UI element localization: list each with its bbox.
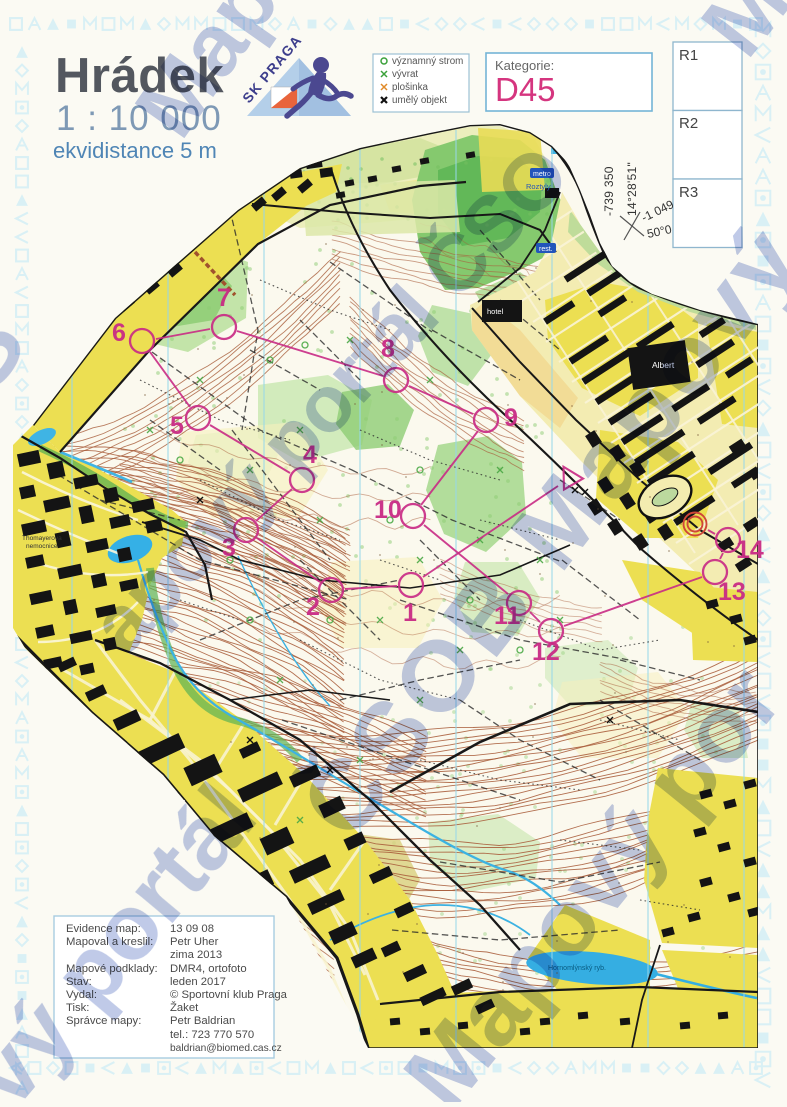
svg-text:vývrat: vývrat <box>392 69 418 80</box>
svg-text:50°0: 50°0 <box>646 222 674 241</box>
svg-text:S: S <box>0 292 48 411</box>
svg-text:umělý objekt: umělý objekt <box>392 95 447 106</box>
svg-text:R1: R1 <box>679 47 698 64</box>
svg-text:D45: D45 <box>495 71 556 108</box>
svg-text:leden 2017: leden 2017 <box>170 976 226 988</box>
svg-text:rest.: rest. <box>539 246 553 253</box>
svg-text:DMR4, ortofoto: DMR4, ortofoto <box>170 963 247 975</box>
svg-text:-1 049: -1 049 <box>639 197 676 225</box>
svg-text:Petr Baldrian: Petr Baldrian <box>170 1015 235 1027</box>
svg-text:6: 6 <box>112 319 126 347</box>
svg-text:Thomayerova: Thomayerova <box>22 535 62 542</box>
svg-text:14: 14 <box>736 536 764 564</box>
svg-text:baldrian@biomed.cas.cz: baldrian@biomed.cas.cz <box>170 1043 282 1054</box>
svg-text:plošinka: plošinka <box>392 82 428 93</box>
svg-text:významný strom: významný strom <box>392 56 463 67</box>
svg-text:nemocnice: nemocnice <box>26 543 58 550</box>
svg-text:2: 2 <box>306 593 320 621</box>
svg-text:7: 7 <box>217 284 231 312</box>
svg-text:R3: R3 <box>679 184 698 201</box>
svg-text:-739 350: -739 350 <box>602 166 616 216</box>
svg-text:R2: R2 <box>679 115 698 132</box>
svg-text:13: 13 <box>718 578 746 606</box>
svg-text:10: 10 <box>374 496 402 524</box>
svg-text:14°28'51": 14°28'51" <box>625 162 639 216</box>
svg-text:9: 9 <box>504 404 518 432</box>
svg-text:zima 2013: zima 2013 <box>170 949 222 961</box>
svg-text:5: 5 <box>170 412 184 440</box>
svg-text:tel.: 723 770 570: tel.: 723 770 570 <box>170 1029 254 1041</box>
svg-text:hotel: hotel <box>487 307 504 316</box>
svg-text:© Sportovní klub Praga: © Sportovní klub Praga <box>170 989 288 1001</box>
svg-text:Žaket: Žaket <box>170 1001 199 1014</box>
